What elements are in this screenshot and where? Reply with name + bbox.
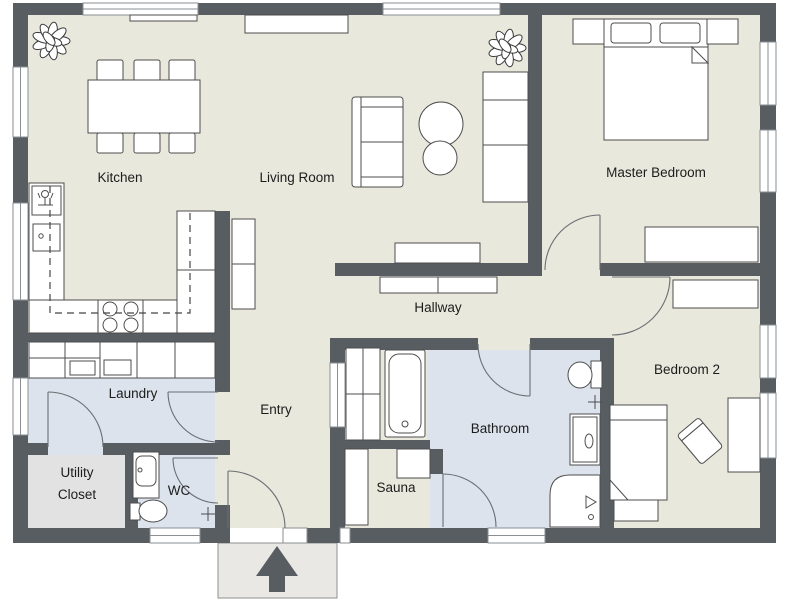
toilet bbox=[568, 361, 602, 388]
cooktop bbox=[98, 300, 143, 333]
vanity-sink bbox=[570, 414, 600, 465]
dining-table bbox=[88, 80, 200, 133]
sauna-bench bbox=[345, 449, 368, 525]
chair bbox=[169, 60, 195, 81]
wall-kitchen-laundry bbox=[28, 333, 215, 342]
window bbox=[488, 528, 545, 543]
chair bbox=[134, 60, 160, 81]
wc-toilet bbox=[130, 500, 167, 522]
nightstand bbox=[573, 19, 604, 44]
room-label-utility-line1: Utility bbox=[61, 465, 94, 480]
shower bbox=[550, 475, 600, 527]
room-label-living-room: Living Room bbox=[259, 170, 334, 185]
wall-master-bedroom2 bbox=[600, 263, 760, 276]
laundry-appliances bbox=[29, 342, 215, 378]
sauna-bench bbox=[397, 449, 430, 478]
kitchen-sink-icon bbox=[32, 186, 61, 215]
pillow bbox=[660, 23, 700, 43]
tv-bench bbox=[245, 15, 348, 33]
bookshelf bbox=[483, 72, 528, 202]
nightstand bbox=[707, 19, 738, 44]
window bbox=[13, 378, 28, 435]
door-threshold bbox=[340, 528, 350, 543]
window bbox=[760, 325, 776, 378]
wall-hallway-living bbox=[335, 263, 542, 276]
wall-bathroom-north-right bbox=[530, 338, 614, 350]
sliding-door bbox=[330, 363, 345, 427]
floor-plan: Kitchen Living Room Master Bedroom Hallw… bbox=[0, 0, 793, 600]
room-label-bathroom: Bathroom bbox=[471, 421, 530, 436]
room-label-hallway: Hallway bbox=[414, 300, 462, 315]
window bbox=[760, 393, 776, 458]
hallway-cabinet bbox=[380, 277, 497, 293]
window bbox=[760, 130, 776, 192]
window bbox=[150, 528, 200, 543]
room-label-laundry: Laundry bbox=[109, 386, 158, 401]
coffee-table-small bbox=[423, 141, 457, 175]
entry-closet bbox=[232, 219, 255, 309]
sofa bbox=[352, 97, 403, 187]
dining-set bbox=[88, 60, 200, 153]
chair bbox=[169, 133, 195, 153]
door-threshold bbox=[283, 528, 307, 543]
wall-sauna-north bbox=[333, 440, 430, 449]
sideboard bbox=[395, 243, 480, 263]
nightstand bbox=[614, 500, 658, 521]
pillow bbox=[611, 23, 651, 43]
room-label-bedroom-2: Bedroom 2 bbox=[654, 362, 720, 377]
coffee-table bbox=[419, 102, 463, 146]
bathroom-closet bbox=[346, 348, 380, 440]
chair bbox=[134, 133, 160, 153]
window bbox=[13, 67, 28, 137]
wc-sink bbox=[133, 452, 159, 498]
wall-sauna-east bbox=[430, 449, 443, 474]
window bbox=[13, 203, 28, 300]
room-label-utility-line2: Closet bbox=[58, 487, 97, 502]
chair bbox=[97, 133, 123, 153]
window bbox=[83, 3, 198, 15]
master-bed bbox=[604, 19, 708, 140]
room-label-wc: WC bbox=[168, 483, 191, 498]
room-label-entry: Entry bbox=[260, 402, 292, 417]
bedroom2-dresser bbox=[673, 280, 758, 308]
window-sill bbox=[130, 15, 197, 21]
bathtub bbox=[385, 350, 425, 437]
chair bbox=[97, 60, 123, 81]
room-label-master-bedroom: Master Bedroom bbox=[606, 165, 706, 180]
room-label-sauna: Sauna bbox=[376, 480, 416, 495]
window bbox=[760, 42, 776, 105]
master-dresser bbox=[645, 227, 758, 262]
dishwasher bbox=[33, 224, 60, 251]
wall-living-master bbox=[528, 15, 542, 276]
room-label-kitchen: Kitchen bbox=[97, 170, 142, 185]
wall-entry-west bbox=[215, 211, 230, 392]
single-bed bbox=[610, 405, 667, 500]
window bbox=[383, 3, 500, 15]
desk bbox=[728, 398, 760, 472]
